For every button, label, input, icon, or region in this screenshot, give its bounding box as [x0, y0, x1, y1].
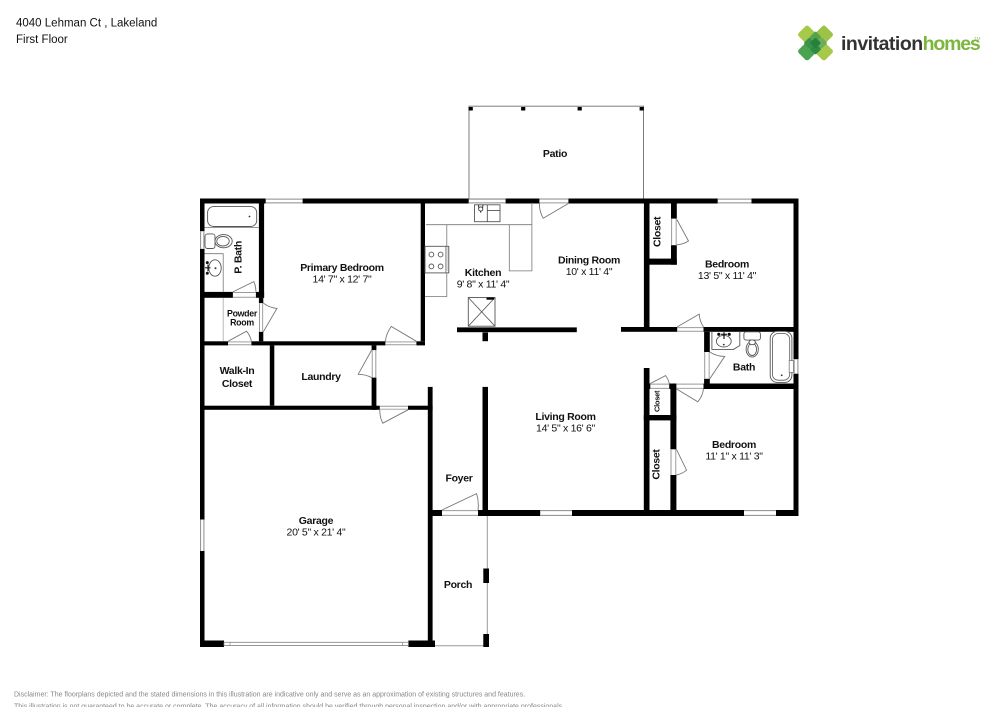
svg-text:Primary Bedroom: Primary Bedroom — [300, 262, 384, 274]
svg-text:20' 5" x 21' 4": 20' 5" x 21' 4" — [287, 527, 346, 539]
svg-text:Laundry: Laundry — [301, 371, 341, 383]
svg-text:9' 8" x 11' 4": 9' 8" x 11' 4" — [457, 279, 510, 291]
svg-text:Room: Room — [230, 318, 254, 328]
svg-text:Foyer: Foyer — [445, 473, 472, 485]
svg-text:13' 5" x 11' 4": 13' 5" x 11' 4" — [698, 270, 757, 282]
svg-text:First Floor: First Floor — [16, 34, 68, 46]
svg-text:Disclaimer: The floorplans dep: Disclaimer: The floorplans depicted and … — [14, 692, 525, 699]
svg-text:This illustration is not guara: This illustration is not guaranteed to b… — [14, 704, 564, 707]
svg-text:11' 1" x 11' 3": 11' 1" x 11' 3" — [705, 451, 763, 463]
svg-text:Closet: Closet — [651, 216, 663, 247]
svg-text:Dining Room: Dining Room — [558, 255, 620, 267]
svg-text:4040 Lehman Ct , Lakeland: 4040 Lehman Ct , Lakeland — [16, 18, 157, 30]
svg-text:TM: TM — [974, 36, 981, 41]
svg-text:Bath: Bath — [733, 362, 755, 374]
svg-text:14' 5" x 16' 6": 14' 5" x 16' 6" — [536, 423, 595, 435]
svg-text:Closet: Closet — [651, 449, 663, 480]
svg-text:14' 7" x 12' 7": 14' 7" x 12' 7" — [313, 274, 372, 286]
svg-text:Closet: Closet — [222, 378, 253, 390]
svg-text:Kitchen: Kitchen — [465, 267, 501, 279]
svg-text:P. Bath: P. Bath — [232, 241, 244, 274]
svg-text:Closet: Closet — [653, 390, 662, 412]
svg-text:Living Room: Living Room — [535, 411, 595, 423]
svg-text:Porch: Porch — [444, 579, 472, 591]
svg-text:Garage: Garage — [299, 515, 334, 527]
svg-text:Bedroom: Bedroom — [705, 259, 749, 271]
svg-text:Walk-In: Walk-In — [220, 365, 255, 377]
svg-text:Bedroom: Bedroom — [712, 439, 756, 451]
svg-text:Patio: Patio — [543, 148, 567, 160]
svg-text:invitationhomes: invitationhomes — [841, 33, 981, 55]
svg-text:10' x 11' 4": 10' x 11' 4" — [566, 266, 613, 278]
